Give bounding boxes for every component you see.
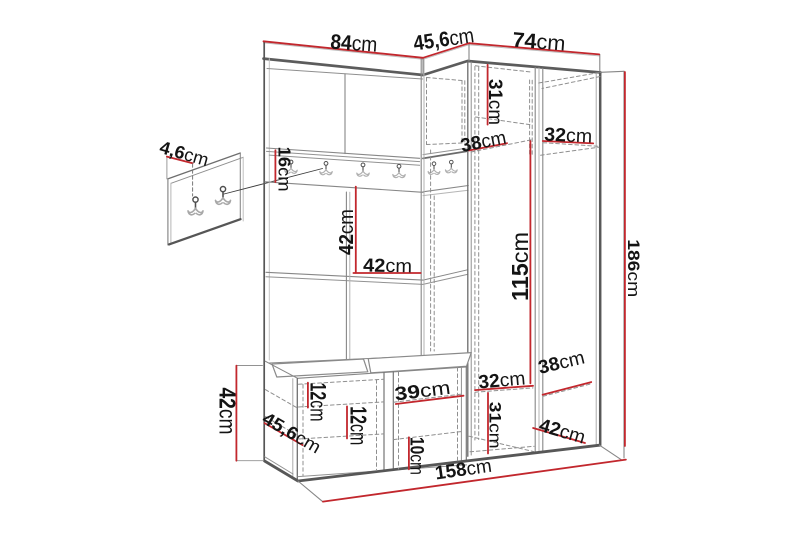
svg-text:12cm: 12cm bbox=[346, 406, 372, 445]
svg-text:31cm: 31cm bbox=[485, 402, 504, 449]
svg-text:16cm: 16cm bbox=[275, 147, 295, 192]
svg-text:42cm: 42cm bbox=[215, 388, 241, 435]
svg-text:12cm: 12cm bbox=[306, 383, 331, 422]
svg-text:84cm: 84cm bbox=[330, 31, 378, 57]
svg-text:10cm: 10cm bbox=[406, 437, 427, 475]
svg-text:31cm: 31cm bbox=[484, 79, 505, 125]
svg-text:74cm: 74cm bbox=[512, 29, 567, 56]
svg-text:42cm: 42cm bbox=[363, 256, 412, 278]
svg-text:115cm: 115cm bbox=[507, 232, 533, 301]
svg-text:186cm: 186cm bbox=[624, 239, 643, 297]
svg-text:32cm: 32cm bbox=[478, 368, 527, 393]
svg-text:32cm: 32cm bbox=[544, 125, 593, 148]
svg-text:42cm: 42cm bbox=[336, 209, 358, 255]
